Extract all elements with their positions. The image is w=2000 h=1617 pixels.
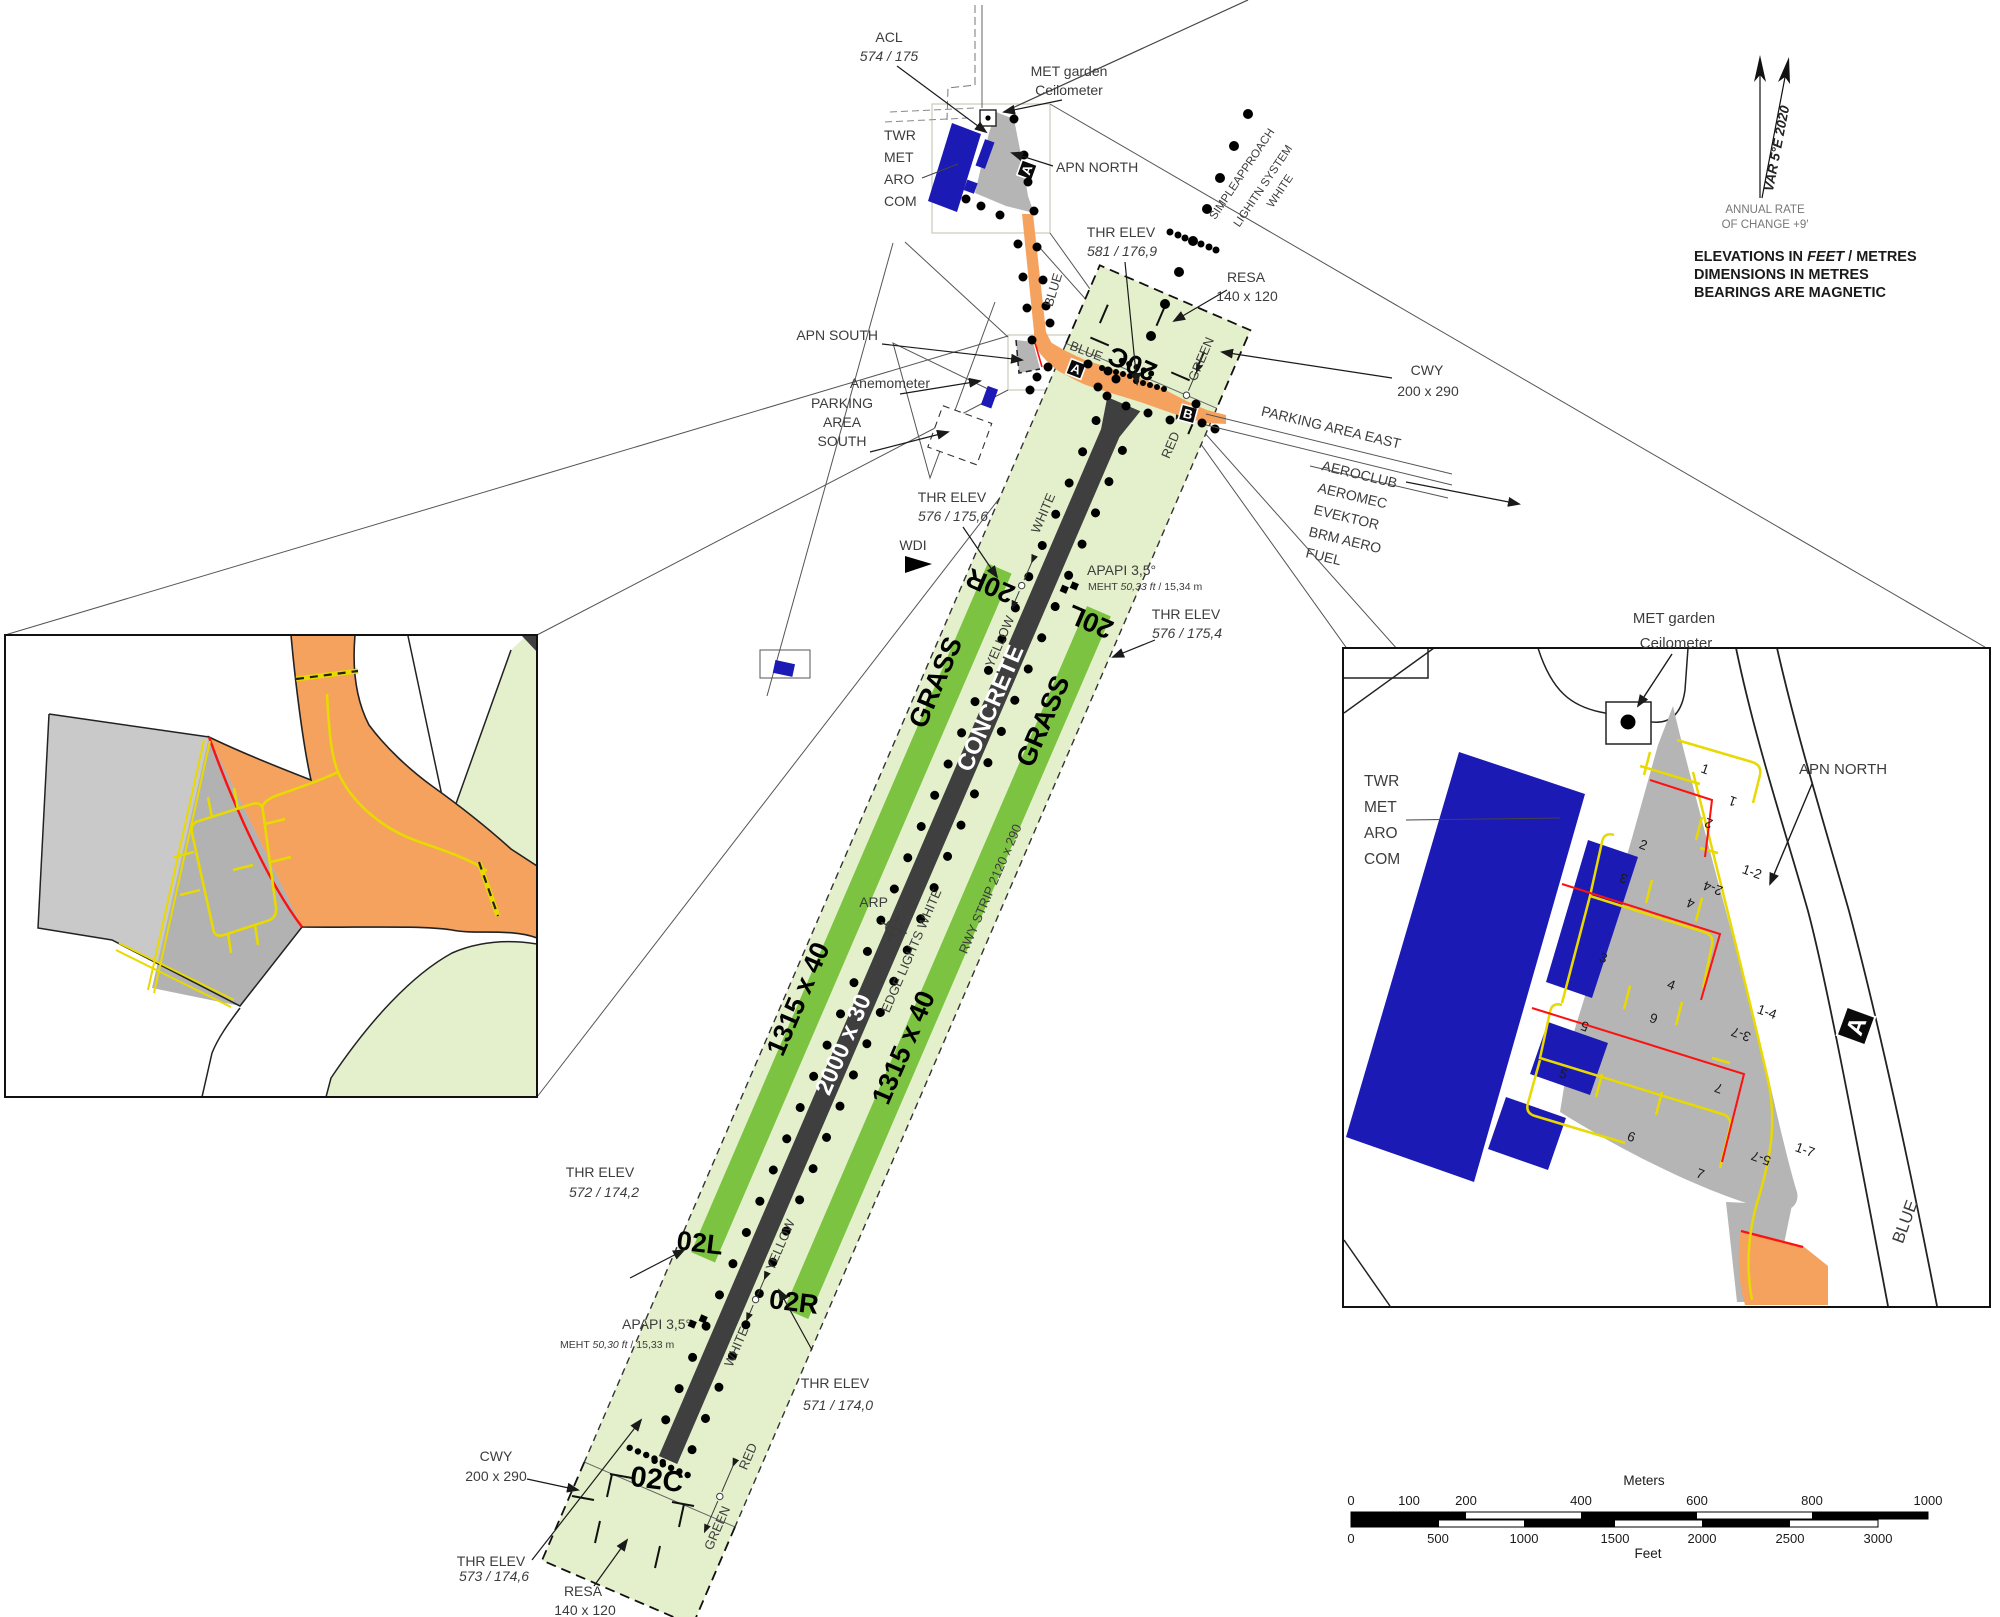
svg-text:572 / 174,2: 572 / 174,2: [569, 1184, 639, 1200]
svg-text:MEHT 50,30 ft / 15,33 m: MEHT 50,30 ft / 15,33 m: [560, 1339, 674, 1351]
svg-text:AREA: AREA: [823, 414, 862, 430]
svg-text:ARO: ARO: [1364, 825, 1398, 842]
svg-text:1500: 1500: [1601, 1531, 1630, 1546]
svg-text:0: 0: [1347, 1531, 1354, 1546]
svg-text:MET garden: MET garden: [1633, 610, 1715, 627]
svg-text:THR ELEV: THR ELEV: [801, 1375, 870, 1391]
svg-text:MEHT 50,33 ft / 15,34 m: MEHT 50,33 ft / 15,34 m: [1088, 581, 1202, 593]
svg-text:1000: 1000: [1914, 1493, 1943, 1508]
svg-text:Ceilometer: Ceilometer: [1640, 635, 1713, 652]
svg-text:OF CHANGE +9′: OF CHANGE +9′: [1722, 219, 1809, 231]
svg-text:MET: MET: [1364, 799, 1397, 816]
svg-text:571 / 174,0: 571 / 174,0: [803, 1397, 873, 1413]
svg-text:APN NORTH: APN NORTH: [1056, 159, 1138, 175]
svg-text:TWR: TWR: [1364, 773, 1399, 790]
svg-text:APN SOUTH: APN SOUTH: [796, 327, 878, 343]
svg-text:2000: 2000: [1688, 1531, 1717, 1546]
svg-text:Ceilometer: Ceilometer: [1035, 82, 1103, 98]
svg-text:ACL: ACL: [875, 29, 902, 45]
svg-text:0: 0: [1347, 1493, 1354, 1508]
svg-text:THR ELEV: THR ELEV: [1152, 606, 1221, 622]
svg-text:THR ELEV: THR ELEV: [1087, 224, 1156, 240]
svg-text:BEARINGS ARE MAGNETIC: BEARINGS ARE MAGNETIC: [1694, 285, 1887, 301]
svg-text:RESA: RESA: [564, 1583, 603, 1599]
svg-text:APAPI 3,5°: APAPI 3,5°: [622, 1316, 691, 1332]
svg-text:CWY: CWY: [1411, 362, 1444, 378]
svg-text:1000: 1000: [1510, 1531, 1539, 1546]
svg-text:APAPI 3,5°: APAPI 3,5°: [1087, 562, 1156, 578]
svg-text:140 x 120: 140 x 120: [554, 1602, 616, 1617]
svg-text:THR ELEV: THR ELEV: [566, 1164, 635, 1180]
svg-text:100: 100: [1398, 1493, 1420, 1508]
svg-text:THR ELEV: THR ELEV: [457, 1553, 526, 1569]
svg-text:CWY: CWY: [480, 1448, 513, 1464]
svg-text:200 x 290: 200 x 290: [1397, 383, 1459, 399]
svg-text:Meters: Meters: [1623, 1473, 1665, 1488]
svg-text:COM: COM: [884, 193, 917, 209]
svg-text:574 / 175: 574 / 175: [860, 48, 919, 64]
svg-text:Anemometer: Anemometer: [850, 375, 930, 391]
svg-text:WDI: WDI: [899, 537, 926, 553]
svg-text:02C: 02C: [629, 1461, 686, 1499]
svg-text:SOUTH: SOUTH: [818, 433, 867, 449]
svg-text:576 / 175,6: 576 / 175,6: [918, 508, 988, 524]
svg-text:576 / 175,4: 576 / 175,4: [1152, 625, 1222, 641]
svg-text:ELEVATIONS IN FEET / METRES: ELEVATIONS IN FEET / METRES: [1694, 249, 1917, 265]
svg-text:TWR: TWR: [884, 127, 916, 143]
svg-text:Feet: Feet: [1634, 1546, 1661, 1561]
svg-text:ARO: ARO: [884, 171, 914, 187]
svg-text:APN NORTH: APN NORTH: [1799, 761, 1887, 778]
svg-text:200 x 290: 200 x 290: [465, 1468, 527, 1484]
svg-text:500: 500: [1427, 1531, 1449, 1546]
svg-text:02R: 02R: [767, 1284, 820, 1320]
svg-text:2500: 2500: [1776, 1531, 1805, 1546]
svg-text:200: 200: [1455, 1493, 1477, 1508]
svg-text:3000: 3000: [1864, 1531, 1893, 1546]
svg-text:THR ELEV: THR ELEV: [918, 489, 987, 505]
svg-text:600: 600: [1686, 1493, 1708, 1508]
svg-text:400: 400: [1570, 1493, 1592, 1508]
svg-text:MET garden: MET garden: [1031, 63, 1108, 79]
svg-text:573 / 174,6: 573 / 174,6: [459, 1568, 529, 1584]
svg-text:PARKING: PARKING: [811, 395, 873, 411]
svg-text:DIMENSIONS IN METRES: DIMENSIONS IN METRES: [1694, 267, 1869, 283]
svg-text:MET: MET: [884, 149, 914, 165]
svg-text:ANNUAL RATE: ANNUAL RATE: [1725, 204, 1805, 216]
svg-text:581 / 176,9: 581 / 176,9: [1087, 243, 1157, 259]
svg-text:COM: COM: [1364, 851, 1400, 868]
svg-text:RESA: RESA: [1227, 269, 1266, 285]
svg-text:02L: 02L: [675, 1225, 725, 1260]
svg-text:ARP: ARP: [859, 894, 888, 910]
svg-text:800: 800: [1801, 1493, 1823, 1508]
